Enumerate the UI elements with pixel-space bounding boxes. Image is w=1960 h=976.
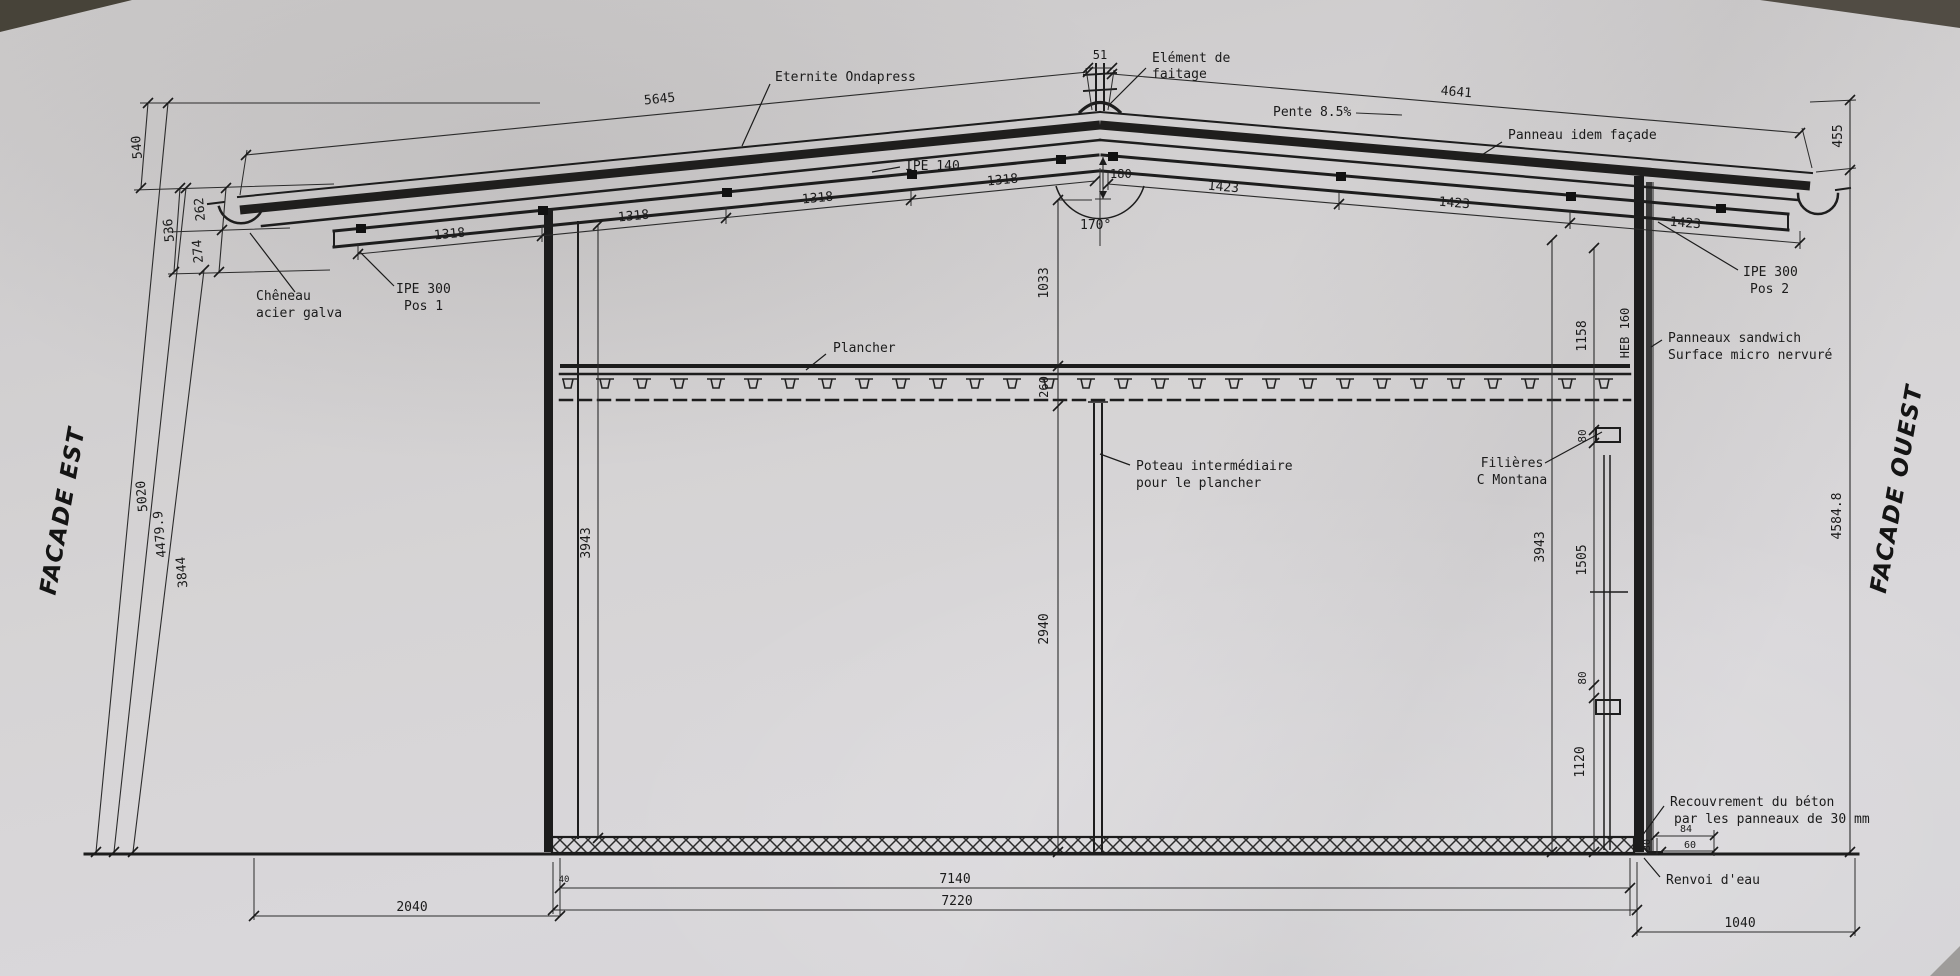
- dim-span-inner: 7140: [939, 872, 970, 887]
- annotation-texts: Eternite Ondapress Elément de faitage Pe…: [256, 51, 1870, 888]
- intermediate-column-label: Poteau intermédiaire: [1136, 459, 1293, 474]
- left-main-column: [544, 208, 553, 852]
- dim-detail-mid: 30: [1642, 839, 1653, 851]
- dim-left-top: 540: [129, 135, 146, 160]
- roof-panel-label: Panneau idem façade: [1508, 128, 1657, 143]
- dim-right-gap: 80: [1576, 671, 1589, 684]
- facade-west-title: FACADE OUEST: [1866, 382, 1928, 596]
- girt-clip: [1596, 700, 1620, 714]
- dim-detail-top: 84: [1680, 824, 1692, 835]
- floor-rib-deck: [562, 377, 1628, 391]
- girts-label: C Montana: [1477, 473, 1547, 488]
- dim-right-mid: 1505: [1575, 544, 1590, 575]
- ridge-element-label: faitage: [1152, 67, 1207, 82]
- dim-roof-right: 4641: [1440, 84, 1472, 102]
- dim-right-clear: 3943: [1533, 531, 1548, 562]
- roof-underline-right: [1100, 140, 1798, 200]
- dim-left-inner: 3844: [174, 556, 192, 589]
- intermediate-column-label: pour le plancher: [1136, 476, 1261, 491]
- gutter-right-lip: [1836, 188, 1850, 190]
- dim-ridge-width: 51: [1093, 48, 1107, 62]
- dim-bay-left: 1318: [617, 208, 650, 226]
- roof-covering-label: Eternite Ondapress: [775, 70, 916, 85]
- gutter-right: [1798, 194, 1838, 214]
- dim-offset-left: 2040: [396, 900, 427, 915]
- floor: [560, 366, 1630, 400]
- drip-label: Renvoi d'eau: [1666, 873, 1760, 888]
- wall-panel-label: Surface micro nervuré: [1668, 348, 1833, 363]
- dim-bay-right: 1423: [1669, 215, 1701, 233]
- dim-bay-right: 1423: [1438, 195, 1470, 213]
- dim-offset-right: 1040: [1724, 916, 1755, 931]
- concrete-cover-label: par les panneaux de 30 mm: [1674, 812, 1870, 827]
- dim-left-b: 274: [190, 239, 207, 264]
- dim-right-upper: 1158: [1575, 320, 1590, 351]
- dim-right-lower: 1120: [1573, 746, 1588, 777]
- dim-roof-left: 5645: [643, 91, 676, 109]
- photo-of-section-drawing: Eternite Ondapress Elément de faitage Pe…: [0, 0, 1960, 976]
- floor-label: Plancher: [833, 341, 896, 356]
- rafter-left-label: Pos 1: [404, 299, 443, 314]
- dim-left-clear: 3943: [579, 527, 594, 558]
- rafter-left-label: IPE 300: [396, 282, 451, 297]
- dim-span-outer: 7220: [941, 894, 972, 909]
- roof-slope-label: Pente 8.5%: [1273, 105, 1351, 120]
- ridge-element-label: Elément de: [1152, 51, 1230, 66]
- dim-ridge-rise: 180: [1110, 167, 1132, 181]
- rafter-right-label: Pos 2: [1750, 282, 1789, 297]
- facade-east-title: FACADE EST: [36, 424, 91, 597]
- girts-label: Filières: [1481, 456, 1544, 471]
- purlin-label: IPE 140: [905, 159, 960, 174]
- concrete-cover-label: Recouvrement du béton: [1670, 795, 1834, 810]
- dim-ridge-angle: 170°: [1080, 218, 1111, 233]
- dimension-texts: 5645 4641 51 180 170° 1318 1318 1318 131…: [129, 48, 1846, 931]
- columns: [544, 176, 1653, 852]
- dim-slab-edge: 40: [559, 875, 570, 885]
- girt-clip: [1596, 428, 1620, 442]
- right-sandwich-panel: [1646, 182, 1652, 852]
- roof-panel-band-right: [1100, 125, 1810, 186]
- gutter-label: Chêneau: [256, 289, 311, 304]
- dim-left-total: 5020: [134, 480, 152, 513]
- dim-left-a: 262: [192, 197, 209, 222]
- dim-right-gap: 80: [1576, 429, 1589, 442]
- rafter-right-label: IPE 300: [1743, 265, 1798, 280]
- column-profile-label: HEB 160: [1618, 308, 1632, 359]
- dim-right-top: 455: [1831, 124, 1846, 147]
- gutter-left-lip: [208, 202, 224, 204]
- right-main-column-heb160: [1634, 176, 1644, 852]
- dim-bay-left: 1318: [986, 172, 1019, 190]
- dim-floor-thickness: 260: [1037, 376, 1051, 398]
- gutter-label: acier galva: [256, 306, 342, 321]
- dim-right-total: 4584.8: [1830, 493, 1845, 540]
- dim-left-ab: 536: [161, 218, 178, 243]
- dim-bay-left: 1318: [433, 226, 466, 244]
- dim-bay-left: 1318: [801, 190, 834, 208]
- dim-ridge-to-floor: 1033: [1037, 267, 1052, 298]
- dim-left-eave: 4479.9: [151, 510, 170, 558]
- dim-floor-to-ground: 2940: [1037, 613, 1052, 644]
- dim-bay-right: 1423: [1207, 179, 1239, 197]
- dim-detail-bot: 60: [1684, 840, 1696, 851]
- wall-panel-label: Panneaux sandwich: [1668, 331, 1801, 346]
- building-section-drawing: Eternite Ondapress Elément de faitage Pe…: [0, 0, 1960, 976]
